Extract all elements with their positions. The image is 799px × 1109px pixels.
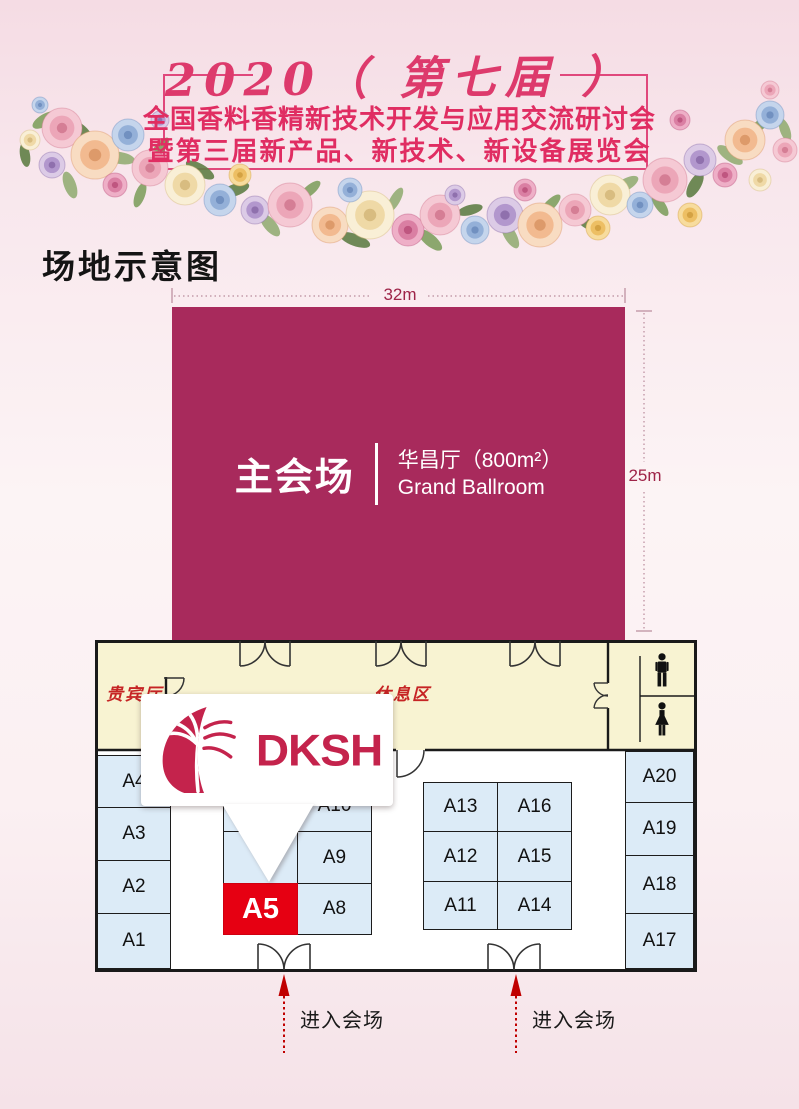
width-dimension-label: 32m [378,285,422,305]
booth-a14: A14 [497,881,572,930]
main-hall-name: 主会场 [235,446,355,501]
dksh-brand-text: DKSH [256,724,382,776]
hall-divider [375,443,378,505]
venue-map-poster: 2020（ 第七届 ） 全国香料香精新技术开发与应用交流研讨会 暨第三届新产品、… [0,0,799,1109]
entrance-label-left: 进入会场 [300,1004,384,1033]
hall-room-info: 华昌厅（800m²） Grand Ballroom [398,447,563,501]
page-title: 场地示意图 [42,240,222,288]
booth-a13: A13 [423,782,498,832]
entrance-label-right: 进入会场 [532,1004,616,1033]
conference-title-line2: 暨第三届新产品、新技术、新设备展览会 [0,131,799,168]
booth-a17: A17 [625,913,694,969]
booth-a19: A19 [625,802,694,856]
callout-pointer [200,800,320,895]
entry-arrow-right [511,974,522,1053]
entry-arrow-left [279,974,290,1053]
booth-a20: A20 [625,751,694,803]
booth-a2: A2 [97,860,171,914]
booth-a12: A12 [423,831,498,882]
booth-a3: A3 [97,807,171,861]
booth-a18: A18 [625,855,694,914]
dksh-palm-logo-icon [152,707,244,793]
main-hall-block: 主会场 华昌厅（800m²） Grand Ballroom [172,307,625,640]
depth-dimension-label: 25m [624,466,666,486]
female-restroom-icon [651,702,673,736]
booth-a11: A11 [423,881,498,930]
exhibitor-callout: DKSH [141,694,393,806]
hall-room-en: Grand Ballroom [398,474,563,501]
booth-a16: A16 [497,782,572,832]
booth-a1: A1 [97,913,171,969]
hall-room-cn: 华昌厅（800m²） [398,447,563,474]
male-restroom-icon [651,653,673,687]
booth-a15: A15 [497,831,572,882]
